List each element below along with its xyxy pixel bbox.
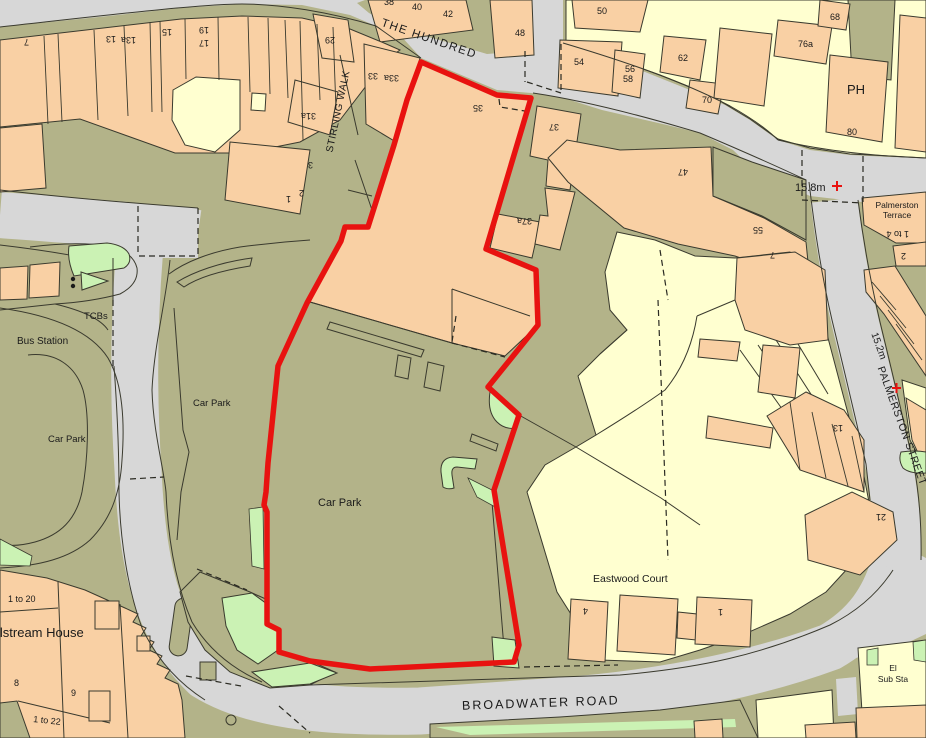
svg-text:50: 50: [597, 6, 607, 16]
svg-text:62: 62: [678, 53, 688, 63]
svg-text:8: 8: [14, 678, 19, 688]
svg-text:El: El: [889, 663, 897, 673]
svg-text:19: 19: [199, 25, 209, 35]
svg-text:Car Park: Car Park: [318, 497, 362, 509]
svg-text:68: 68: [830, 12, 840, 22]
svg-text:35: 35: [473, 103, 483, 113]
svg-text:29: 29: [325, 35, 335, 45]
svg-text:76a: 76a: [798, 39, 813, 49]
svg-text:1: 1: [718, 607, 723, 617]
svg-text:15.8m: 15.8m: [795, 182, 826, 194]
svg-text:Sub Sta: Sub Sta: [878, 674, 909, 684]
svg-text:54: 54: [574, 57, 584, 67]
svg-text:42: 42: [443, 9, 453, 19]
svg-text:31a: 31a: [301, 111, 316, 121]
svg-text:58: 58: [623, 74, 633, 84]
svg-text:4: 4: [583, 606, 588, 616]
svg-text:56: 56: [625, 64, 635, 74]
svg-text:2: 2: [901, 251, 906, 261]
svg-text:3: 3: [308, 160, 313, 170]
svg-text:Palmerston: Palmerston: [876, 200, 919, 210]
svg-text:llstream House: llstream House: [0, 625, 84, 640]
svg-text:70: 70: [702, 95, 712, 105]
svg-text:1 to 4: 1 to 4: [886, 229, 909, 239]
svg-text:55: 55: [753, 225, 763, 235]
svg-text:15: 15: [162, 27, 172, 37]
svg-text:TCBs: TCBs: [84, 311, 108, 322]
svg-text:Terrace: Terrace: [883, 210, 912, 220]
svg-text:Bus Station: Bus Station: [17, 336, 68, 347]
svg-text:9: 9: [71, 688, 76, 698]
svg-text:1: 1: [286, 194, 291, 204]
svg-text:40: 40: [412, 2, 422, 12]
svg-text:33: 33: [368, 71, 378, 81]
svg-text:33a: 33a: [384, 73, 399, 83]
svg-text:1 to 20: 1 to 20: [8, 594, 36, 604]
svg-text:48: 48: [515, 28, 525, 38]
svg-text:47: 47: [678, 167, 688, 177]
svg-text:17: 17: [199, 38, 209, 48]
svg-text:37a: 37a: [517, 216, 532, 226]
svg-text:13: 13: [106, 34, 116, 44]
svg-text:Eastwood Court: Eastwood Court: [593, 573, 668, 585]
svg-text:7: 7: [770, 250, 775, 260]
svg-text:7: 7: [24, 37, 29, 47]
svg-text:13: 13: [833, 423, 843, 433]
svg-text:Car Park: Car Park: [193, 398, 231, 409]
svg-text:21: 21: [876, 512, 886, 522]
svg-text:37: 37: [549, 122, 559, 132]
svg-text:2: 2: [299, 188, 304, 198]
svg-text:PH: PH: [847, 82, 865, 97]
svg-text:38: 38: [384, 0, 394, 7]
svg-text:80: 80: [847, 127, 857, 137]
svg-text:Car Park: Car Park: [48, 434, 86, 445]
svg-text:13a: 13a: [121, 35, 136, 45]
